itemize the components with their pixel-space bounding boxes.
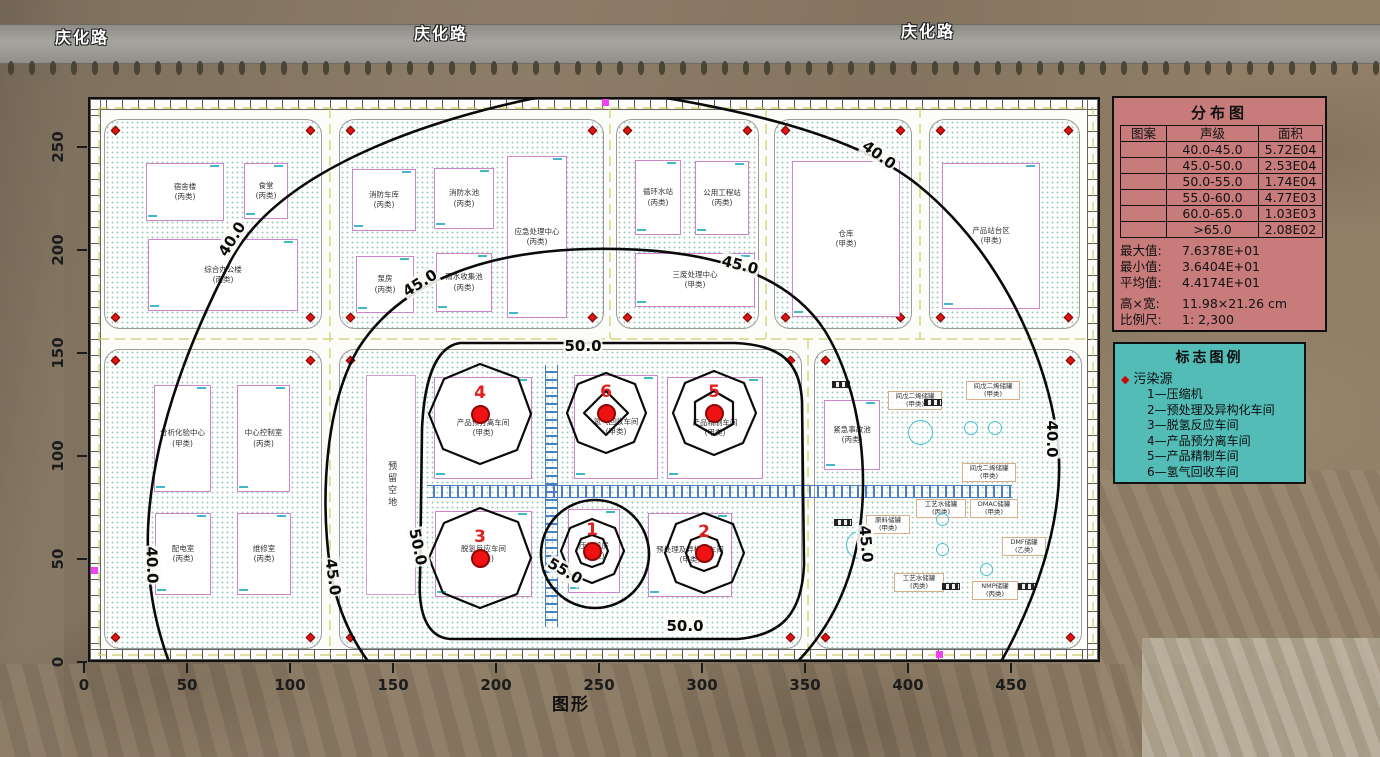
distribution-row: 40.0-45.05.72E04 [1121, 142, 1323, 158]
y-axis-tick [77, 558, 87, 560]
col-header-area: 面积 [1259, 126, 1323, 142]
road-label: 庆化路 [901, 18, 955, 42]
distribution-row: 60.0-65.01.03E03 [1121, 206, 1323, 222]
pollution-source-dot [597, 404, 616, 423]
contour-45 [326, 249, 863, 662]
pollution-source-number: 1 [586, 520, 598, 540]
x-axis-tick-label: 450 [995, 676, 1026, 694]
pollution-source-number: 6 [600, 382, 612, 402]
area-cell: 5.72E04 [1259, 142, 1323, 158]
satellite-tree-line [0, 52, 1380, 82]
stat-row: 最小值:3.6404E+01 [1120, 259, 1319, 275]
pollution-source-number: 2 [698, 522, 710, 542]
x-axis-tick-label: 50 [177, 676, 198, 694]
level-cell: >65.0 [1167, 222, 1259, 238]
area-cell: 2.53E04 [1259, 158, 1323, 174]
x-axis-tick [289, 663, 291, 673]
stat-value: 7.6378E+01 [1182, 243, 1260, 259]
pattern-cell [1121, 142, 1167, 158]
pollution-source-number: 4 [474, 383, 486, 403]
pattern-cell [1121, 158, 1167, 174]
legend-item: 4—产品预分离车间 [1147, 434, 1298, 450]
distribution-table: 图案 声级 面积 40.0-45.05.72E0445.0-50.02.53E0… [1120, 125, 1323, 238]
y-axis-tick-label: 100 [49, 440, 67, 471]
distribution-stats: 最大值:7.6378E+01最小值:3.6404E+01平均值:4.4174E+… [1120, 243, 1319, 328]
pattern-cell [1121, 206, 1167, 222]
legend-item: 6—氢气回收车间 [1147, 465, 1298, 481]
distribution-row: 55.0-60.04.77E03 [1121, 190, 1323, 206]
y-axis-tick-label: 50 [49, 549, 67, 570]
pattern-cell [1121, 174, 1167, 190]
y-axis-tick [77, 661, 87, 663]
noise-contours [90, 99, 1100, 662]
y-axis-tick [77, 249, 87, 251]
pattern-cell [1121, 222, 1167, 238]
x-axis-tick [1010, 663, 1012, 673]
x-axis-tick-label: 300 [686, 676, 717, 694]
stat-value: 3.6404E+01 [1182, 259, 1260, 275]
level-cell: 50.0-55.0 [1167, 174, 1259, 190]
legend-item: 5—产品精制车间 [1147, 449, 1298, 465]
x-axis-tick-label: 400 [892, 676, 923, 694]
noise-map-screenshot: 庆化路庆化路庆化路 宿舍楼(丙类)食堂(丙类)综合办公楼(丙类)消防车库(丙类)… [0, 0, 1380, 757]
x-axis-tick-label: 0 [79, 676, 89, 694]
y-axis-tick-label: 150 [49, 337, 67, 368]
level-cell: 40.0-45.0 [1167, 142, 1259, 158]
source-diamond-icon: ◆ [1121, 373, 1129, 386]
marker-legend-title: 标志图例 [1121, 347, 1298, 367]
x-axis-tick-label: 200 [480, 676, 511, 694]
x-axis-tick [804, 663, 806, 673]
stat-value: 11.98×21.26 cm [1182, 296, 1287, 312]
area-cell: 2.08E02 [1259, 222, 1323, 238]
legend-item: 2—预处理及异构化车间 [1147, 403, 1298, 419]
area-cell: 1.74E04 [1259, 174, 1323, 190]
distribution-title: 分布图 [1120, 102, 1319, 123]
satellite-field-right [1100, 470, 1380, 757]
pollution-source-dot [471, 549, 490, 568]
stat-row: 比例尺:1: 2,300 [1120, 312, 1319, 328]
pattern-cell [1121, 190, 1167, 206]
area-cell: 4.77E03 [1259, 190, 1323, 206]
contour-label: 45.0 [855, 524, 876, 564]
y-axis-tick [77, 455, 87, 457]
stat-label: 平均值: [1120, 275, 1182, 291]
stat-row: 平均值:4.4174E+01 [1120, 275, 1319, 291]
contour-label: 40.0 [142, 545, 161, 585]
contour-label: 50.0 [563, 337, 602, 355]
satellite-left-field [0, 0, 64, 757]
y-axis-tick [77, 352, 87, 354]
stat-label: 最小值: [1120, 259, 1182, 275]
x-axis-tick [495, 663, 497, 673]
x-axis-tick [186, 663, 188, 673]
pollution-source-dot [695, 544, 714, 563]
stat-label: 最大值: [1120, 243, 1182, 259]
contour-label: 40.0 [1043, 419, 1061, 458]
level-cell: 60.0-65.0 [1167, 206, 1259, 222]
satellite-road [0, 24, 1380, 64]
level-cell: 55.0-60.0 [1167, 190, 1259, 206]
contour-label: 50.0 [665, 617, 704, 635]
marker-legend-items: 1—压缩机2—预处理及异构化车间3—脱氢反应车间4—产品预分离车间5—产品精制车… [1121, 387, 1298, 480]
y-axis-tick-label: 200 [49, 234, 67, 265]
x-axis-title: 图形 [552, 690, 590, 715]
x-axis-tick [83, 663, 85, 673]
road-label: 庆化路 [414, 20, 468, 44]
site-plan-map: 宿舍楼(丙类)食堂(丙类)综合办公楼(丙类)消防车库(丙类)消防水池(丙类)泵房… [88, 97, 1100, 662]
x-axis-tick [392, 663, 394, 673]
pollution-source-group: ◆污染源 [1121, 368, 1298, 387]
pollution-source-number: 3 [474, 527, 486, 547]
x-axis-tick-label: 150 [377, 676, 408, 694]
x-axis-tick [701, 663, 703, 673]
col-header-level: 声级 [1167, 126, 1259, 142]
stat-row: 高×宽:11.98×21.26 cm [1120, 296, 1319, 312]
marker-legend-panel: 标志图例 ◆污染源 1—压缩机2—预处理及异构化车间3—脱氢反应车间4—产品预分… [1113, 342, 1306, 484]
legend-item: 3—脱氢反应车间 [1147, 418, 1298, 434]
x-axis-tick-label: 100 [274, 676, 305, 694]
x-axis-tick [598, 663, 600, 673]
y-axis-tick [77, 146, 87, 148]
pollution-source-dot [583, 542, 602, 561]
road-label: 庆化路 [55, 24, 109, 48]
y-axis-tick-label: 0 [49, 657, 67, 667]
col-header-pattern: 图案 [1121, 126, 1167, 142]
legend-item: 1—压缩机 [1147, 387, 1298, 403]
y-axis-tick-label: 250 [49, 131, 67, 162]
stat-row: 最大值:7.6378E+01 [1120, 243, 1319, 259]
stat-label: 高×宽: [1120, 296, 1182, 312]
satellite-light-patch [1142, 638, 1380, 757]
x-axis-tick-label: 350 [789, 676, 820, 694]
pollution-source-dot [705, 404, 724, 423]
stat-label: 比例尺: [1120, 312, 1182, 328]
distribution-row: 45.0-50.02.53E04 [1121, 158, 1323, 174]
distribution-row: 50.0-55.01.74E04 [1121, 174, 1323, 190]
stat-value: 1: 2,300 [1182, 312, 1234, 328]
pollution-source-number: 5 [708, 382, 720, 402]
distribution-panel: 分布图 图案 声级 面积 40.0-45.05.72E0445.0-50.02.… [1112, 96, 1327, 332]
stat-value: 4.4174E+01 [1182, 275, 1260, 291]
pollution-source-dot [471, 405, 490, 424]
level-cell: 45.0-50.0 [1167, 158, 1259, 174]
x-axis-tick [907, 663, 909, 673]
area-cell: 1.03E03 [1259, 206, 1323, 222]
distribution-row: >65.02.08E02 [1121, 222, 1323, 238]
